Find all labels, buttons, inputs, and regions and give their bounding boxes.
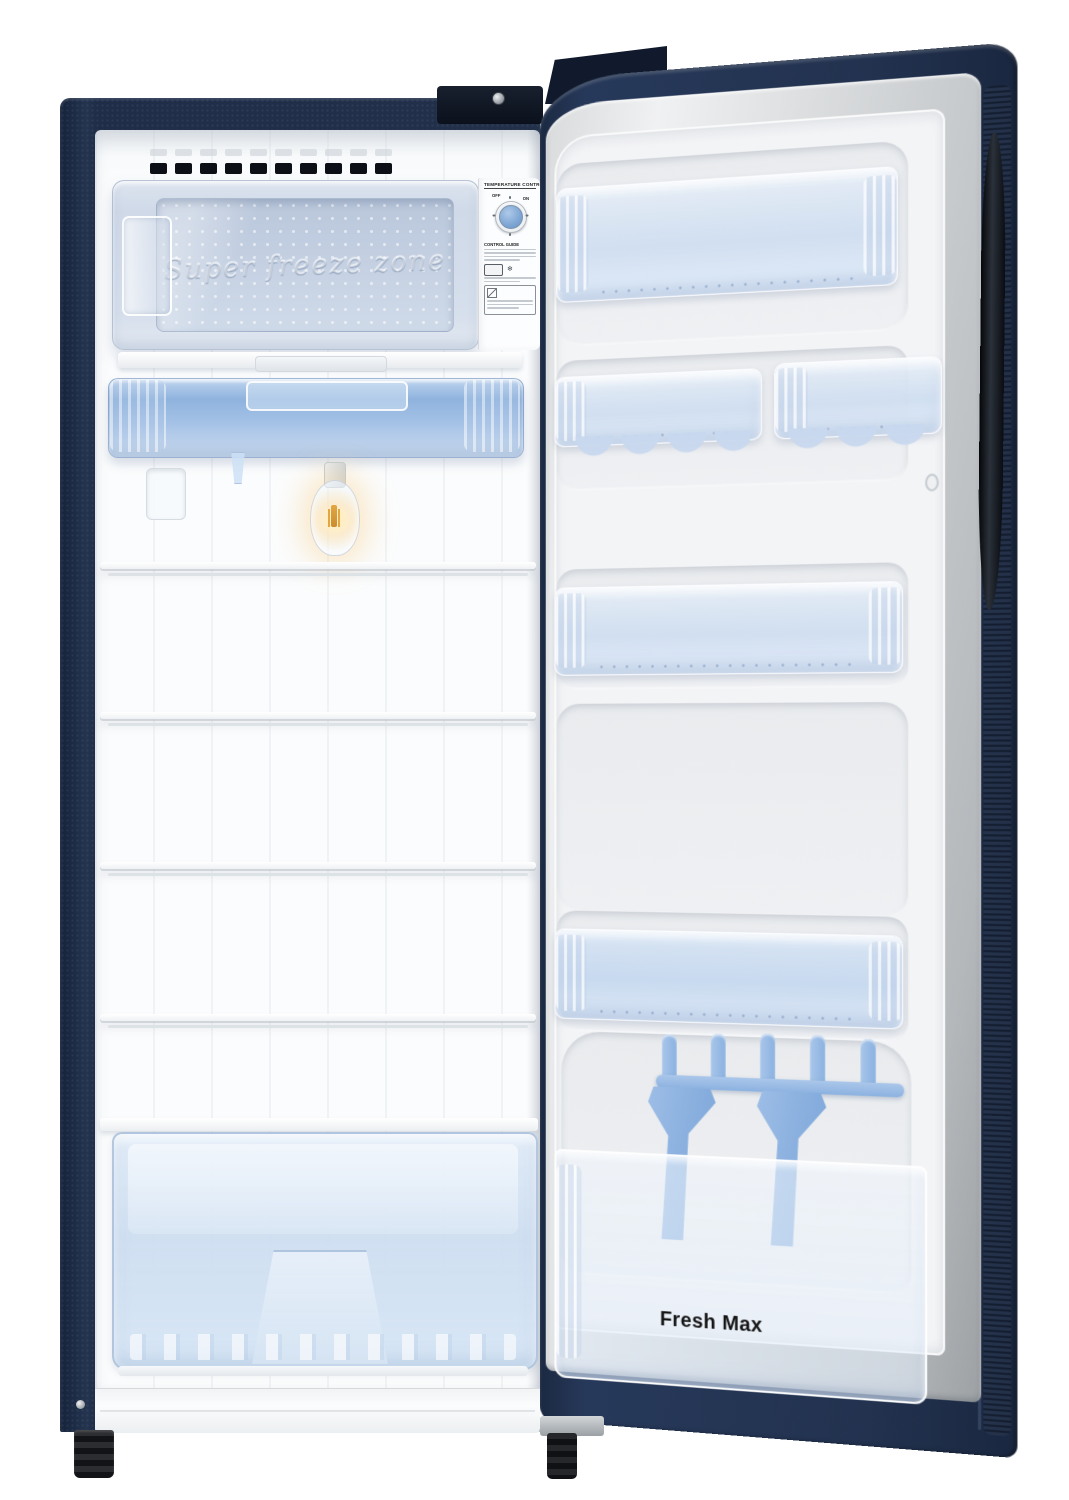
bin-endcap bbox=[555, 381, 586, 441]
warning-icon bbox=[487, 288, 497, 298]
crisper-base-rail bbox=[118, 1366, 528, 1376]
dial-off-label: OFF bbox=[492, 193, 500, 198]
wire-shelf-1 bbox=[100, 562, 536, 569]
door-bin-middle bbox=[554, 581, 903, 676]
freezer-flap-handle bbox=[122, 216, 172, 316]
control-guide-icons: ❄ bbox=[484, 264, 536, 276]
cabinet-screw bbox=[76, 1400, 85, 1409]
bulb-filament bbox=[331, 505, 337, 527]
bottle-rack-front-bin bbox=[554, 1149, 927, 1405]
refrigerator-door-open: Fresh Max bbox=[540, 42, 1018, 1458]
bin-endcap bbox=[556, 1164, 581, 1359]
bin-endcap bbox=[863, 174, 896, 276]
freezer-embossed-text: Super freeze zone bbox=[163, 245, 446, 286]
chiller-endcap-left bbox=[110, 380, 166, 452]
control-guide-title: CONTROL GUIDE bbox=[484, 242, 536, 247]
fridge-pictogram-icon bbox=[484, 264, 503, 276]
door-bin-lower bbox=[554, 928, 903, 1029]
wire-shelf-2 bbox=[100, 712, 536, 719]
vent-grille-upper bbox=[150, 149, 402, 157]
wire-shelf-4 bbox=[100, 1014, 536, 1021]
bin-endcap bbox=[555, 593, 586, 668]
temperature-control-panel: TEMPERATURE CONTROL OFF ON CONTROL GUIDE… bbox=[478, 178, 540, 350]
freezer-flap-window: Super freeze zone bbox=[156, 198, 454, 332]
bottom-hinge-pin bbox=[547, 1433, 577, 1479]
snowflake-icon: ❄ bbox=[507, 266, 513, 273]
leveling-leg-left bbox=[74, 1430, 114, 1478]
bin-endcap bbox=[775, 367, 808, 432]
chiller-tray-handle bbox=[246, 381, 408, 411]
crisper-cover-shelf bbox=[100, 1118, 538, 1131]
crisper-back-sheen bbox=[128, 1144, 518, 1234]
door-recess-empty bbox=[556, 702, 908, 919]
bin-endcap bbox=[555, 935, 586, 1012]
vent-grille-icon bbox=[150, 163, 402, 175]
crisper-bottom-ribs bbox=[130, 1334, 516, 1360]
wire-shelf-3 bbox=[100, 862, 536, 869]
refrigerator-product-photo: Super freeze zone TEMPERATURE CONTROL OF… bbox=[0, 0, 1069, 1500]
bin-endcap bbox=[557, 195, 588, 294]
top-hinge-screw bbox=[492, 92, 505, 105]
bin-endcap bbox=[869, 942, 902, 1022]
warning-note-box bbox=[484, 285, 536, 315]
bin-endcap bbox=[869, 587, 902, 664]
door-catch-hole bbox=[925, 473, 939, 491]
temperature-control-title: TEMPERATURE CONTROL bbox=[484, 182, 536, 189]
dial-on-label: ON bbox=[523, 196, 529, 201]
freezer-floor-tab bbox=[255, 356, 387, 372]
door-inner-panel: Fresh Max bbox=[554, 108, 945, 1356]
egg-dimples-right bbox=[784, 423, 929, 455]
temperature-dial: OFF ON bbox=[488, 192, 532, 238]
dial-knob bbox=[499, 205, 523, 229]
plinth-line bbox=[100, 1410, 535, 1412]
drip-cup bbox=[146, 468, 186, 520]
top-hinge-bracket bbox=[437, 86, 543, 124]
chiller-endcap-right bbox=[464, 380, 520, 452]
door-bin-top bbox=[556, 166, 897, 303]
